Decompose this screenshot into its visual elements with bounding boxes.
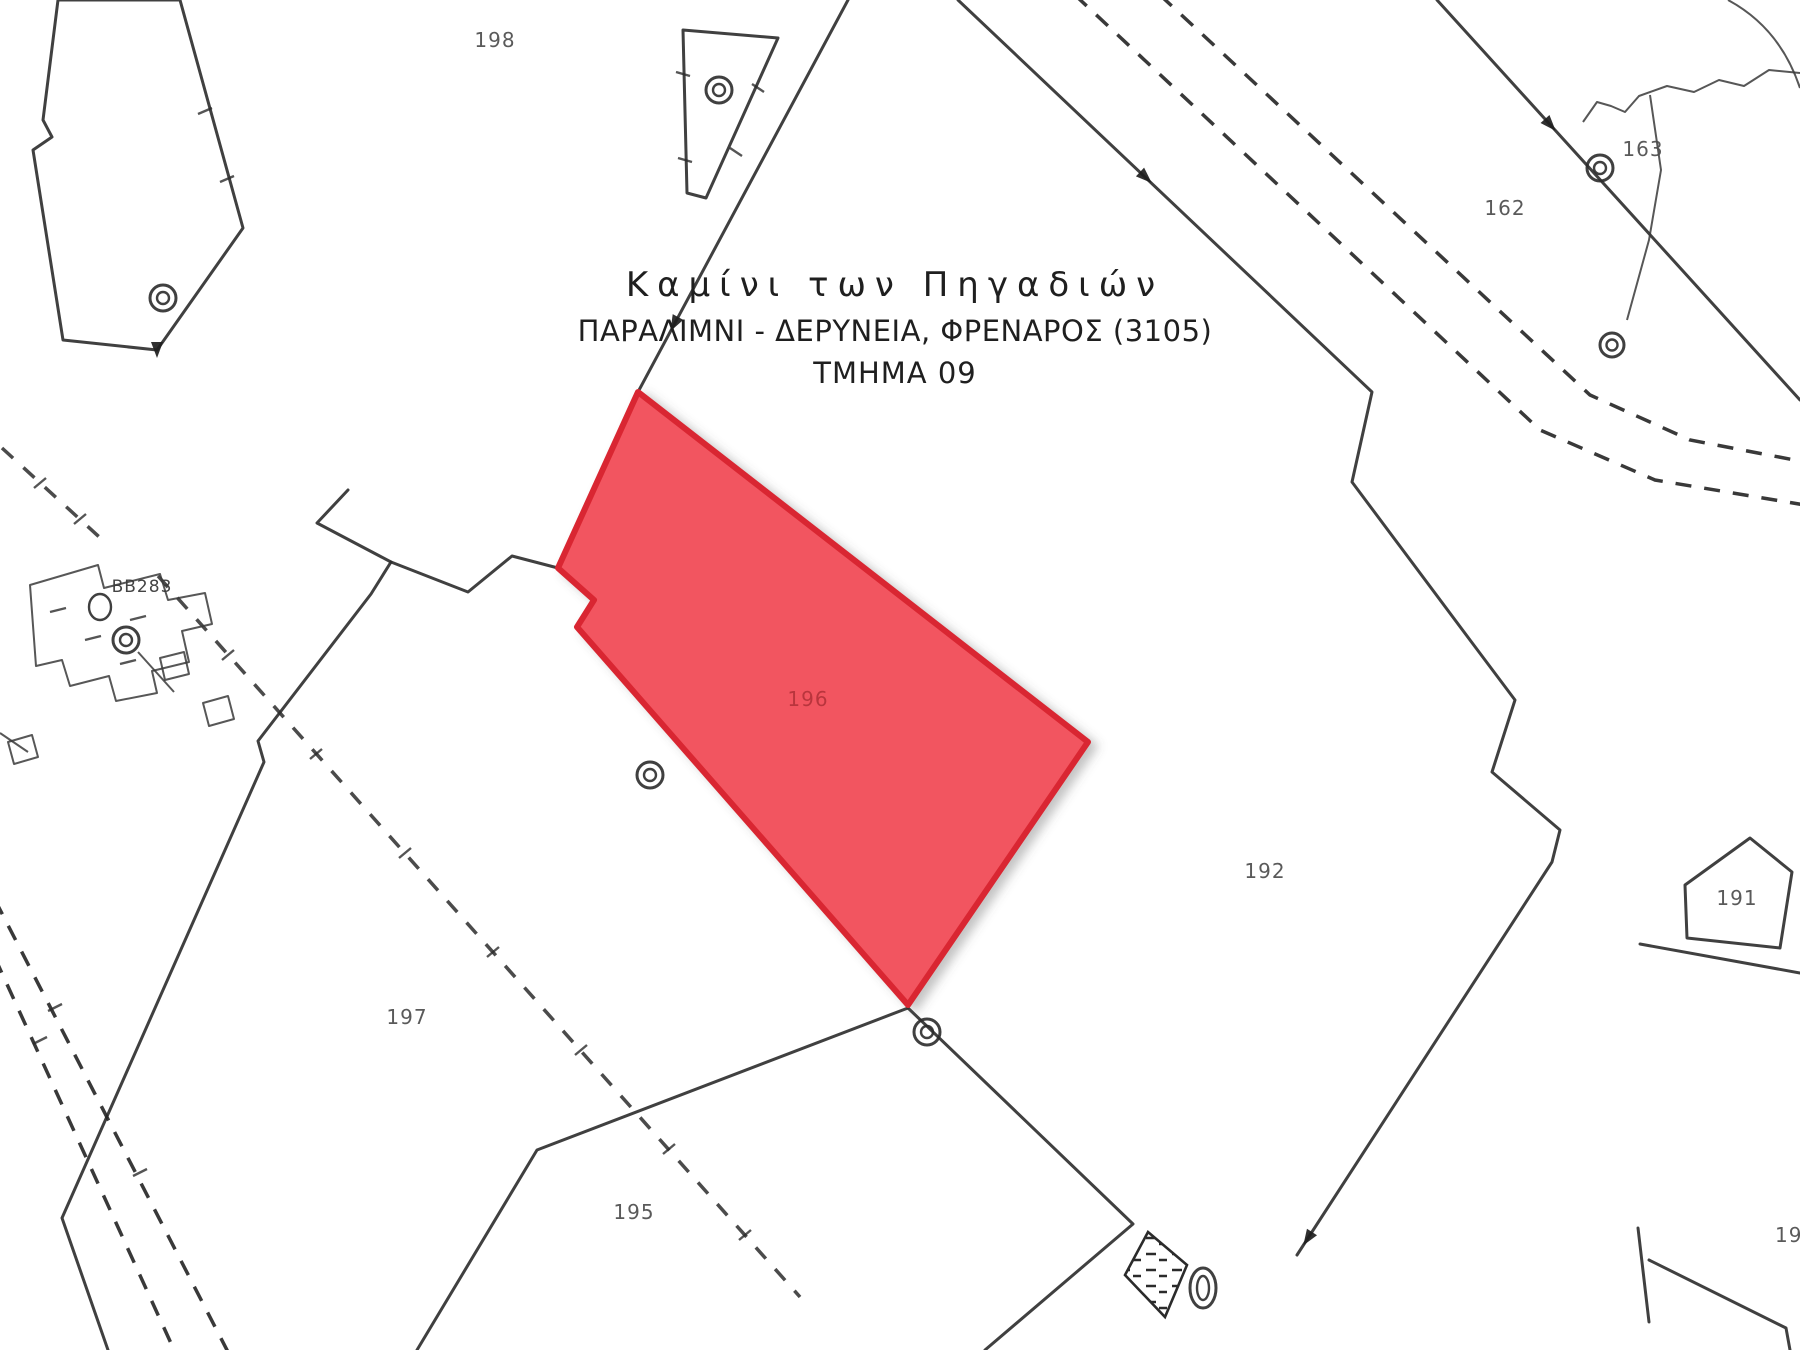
parcel-number-198: 198 [474,28,515,52]
parcel-number-195: 195 [613,1200,654,1224]
parcel-number-197: 197 [386,1005,427,1029]
survey-ref-label: BB283 [112,577,173,597]
parcel-number-191: 191 [1716,886,1757,910]
cadastral-map: 196 198 163 [0,0,1800,1350]
map-title-locality: Καμίνι των Πηγαδιών [626,265,1164,305]
parcel-number-190: 190 [1775,1223,1800,1247]
map-title-sheet: ΤΜΗΜΑ 09 [812,356,977,390]
parcel-number-163: 163 [1622,137,1663,161]
map-title-plan: ΠΑΡΑΛΙΜΝΙ - ΔΕΡΥΝΕΙΑ, ΦΡΕΝΑΡΟΣ (3105) [578,314,1213,348]
highlighted-parcel-number: 196 [787,687,828,711]
parcel-number-162: 162 [1484,196,1525,220]
parcel-number-192: 192 [1244,859,1285,883]
